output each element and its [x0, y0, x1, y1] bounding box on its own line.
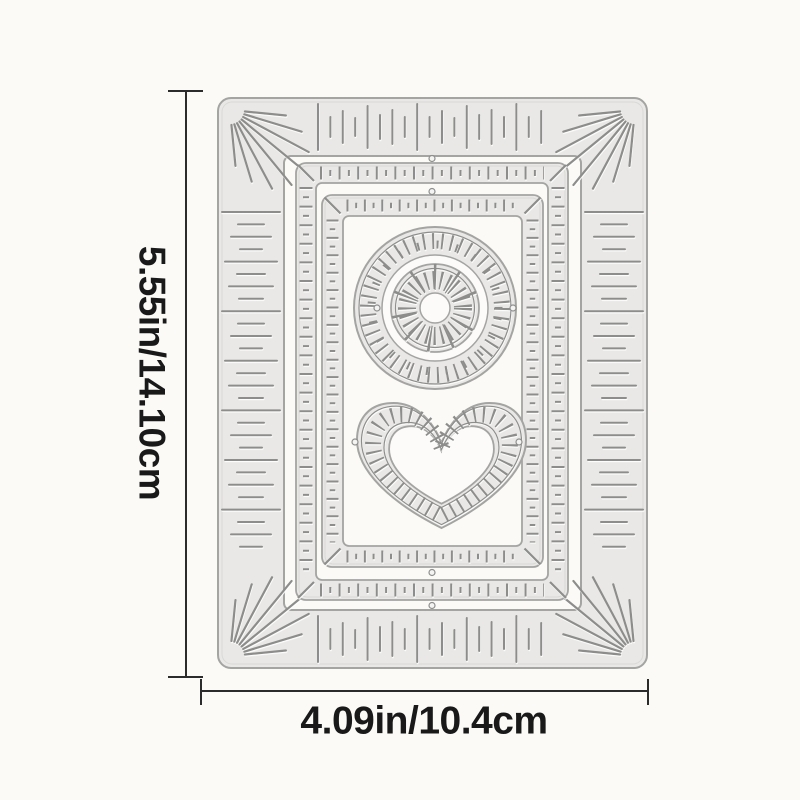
stitch-heart-die [357, 403, 526, 528]
product-dimension-image: 5.55in/14.10cm 4.09in/10.4cm [0, 0, 800, 800]
cutting-die-illustration [0, 0, 800, 800]
height-dimension-label: 5.55in/14.10cm [134, 246, 171, 500]
width-dimension-label: 4.09in/10.4cm [300, 702, 547, 741]
